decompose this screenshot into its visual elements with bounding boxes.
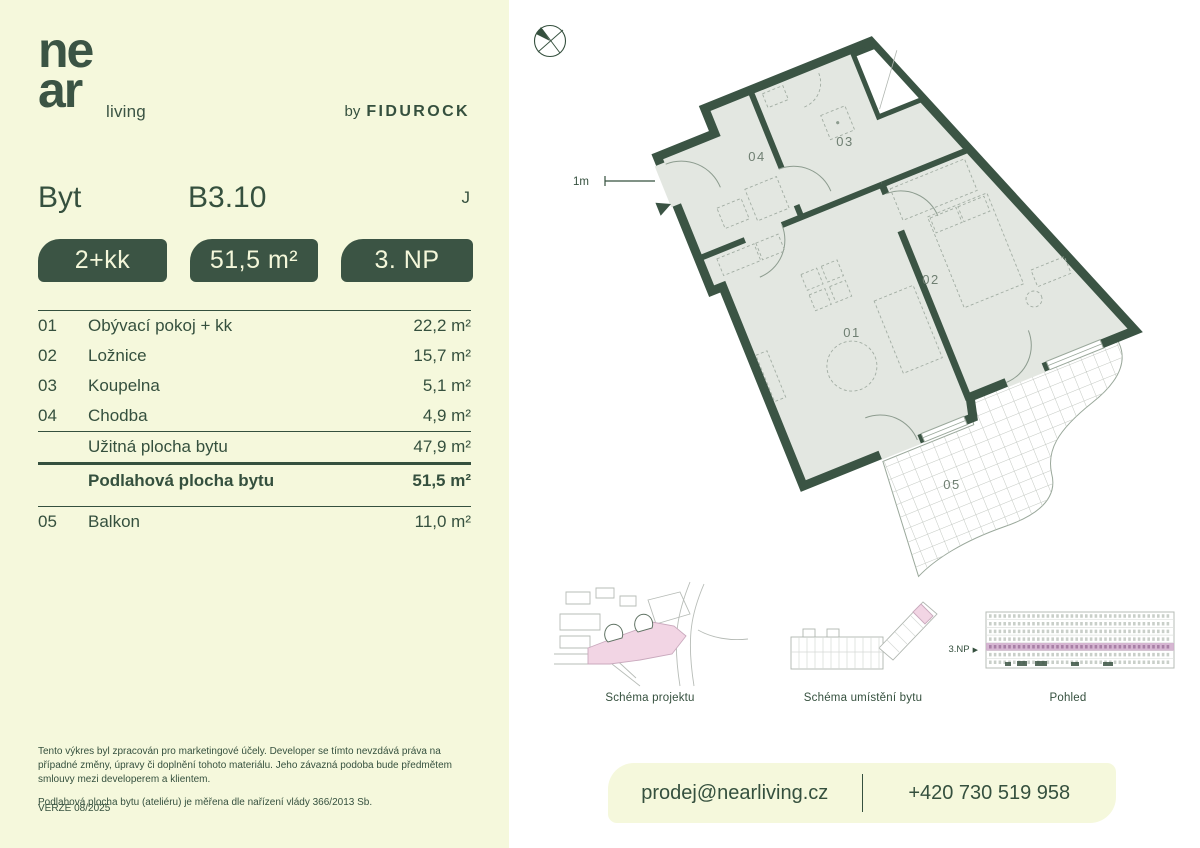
usable-area-label: Užitná plocha bytu	[88, 437, 413, 457]
room-area: 22,2 m²	[413, 316, 471, 336]
room-label-bedroom: 02	[922, 272, 939, 287]
by-label: by	[345, 103, 361, 120]
developer-byline: byFIDUROCK	[0, 103, 470, 121]
badge-layout: 2+kk	[38, 239, 167, 282]
fidurock-wordmark: FIDUROCK	[366, 103, 470, 120]
legal-disclaimer: Tento výkres byl zpracován pro marketing…	[38, 745, 471, 810]
floor-plate-schematic	[783, 582, 943, 687]
room-label-living: 01	[843, 325, 860, 340]
table-row: 01 Obývací pokoj + kk 22,2 m²	[38, 311, 471, 341]
table-row: 03 Koupelna 5,1 m²	[38, 371, 471, 401]
floor-area-label: Podlahová plocha bytu	[88, 471, 412, 491]
info-panel: ne ar living byFIDUROCK Byt B3.10 J 2+kk…	[0, 0, 509, 848]
floor-marker-label: 3.NP	[948, 644, 969, 655]
room-name: Ložnice	[88, 346, 413, 366]
unit-header: Byt B3.10 J	[38, 181, 470, 215]
disclaimer-paragraph-1: Tento výkres byl zpracován pro marketing…	[38, 745, 471, 787]
scale-label: 1m	[573, 176, 589, 188]
balcony-row: 05 Balkon 11,0 m²	[38, 507, 471, 537]
room-label-bath: 03	[836, 134, 853, 149]
room-name: Balkon	[88, 512, 415, 532]
room-area: 15,7 m²	[413, 346, 471, 366]
caption-site-plan: Schéma projektu	[552, 692, 748, 704]
site-plan-schematic	[552, 578, 748, 690]
room-number: 01	[38, 316, 88, 336]
version-label: VERZE 08/2025	[38, 803, 110, 814]
badge-floor: 3. NP	[341, 239, 473, 282]
orientation-label: J	[462, 188, 471, 208]
scale-bar: 1m	[573, 176, 655, 188]
floor-marker-arrow-icon: ▶	[973, 647, 978, 654]
room-name: Chodba	[88, 406, 423, 426]
unit-type-label: Byt	[38, 181, 81, 215]
room-label-hall: 04	[748, 149, 765, 164]
contact-email-link[interactable]: prodej@nearliving.cz	[608, 782, 862, 805]
unit-code: B3.10	[188, 181, 266, 215]
room-number: 04	[38, 406, 88, 426]
room-name: Koupelna	[88, 376, 423, 396]
balcony-table: 05 Balkon 11,0 m²	[38, 506, 471, 537]
floor-area-row: Podlahová plocha bytu 51,5 m²	[38, 465, 471, 497]
logo-wordmark: ne ar	[38, 30, 238, 110]
floor-area-value: 51,5 m²	[412, 471, 471, 491]
room-name: Obývací pokoj + kk	[88, 316, 413, 336]
flat-datasheet-page: ne ar living byFIDUROCK Byt B3.10 J 2+kk…	[0, 0, 1200, 848]
table-row: 02 Ložnice 15,7 m²	[38, 341, 471, 371]
room-area: 5,1 m²	[423, 376, 471, 396]
contact-phone-link[interactable]: +420 730 519 958	[863, 782, 1117, 805]
floor-plan-drawing: 1m	[509, 0, 1200, 600]
room-number: 03	[38, 376, 88, 396]
elevation-schematic	[983, 606, 1178, 684]
caption-elevation: Pohled	[972, 692, 1164, 704]
table-row: 04 Chodba 4,9 m²	[38, 401, 471, 431]
room-table: 01 Obývací pokoj + kk 22,2 m² 02 Ložnice…	[38, 310, 471, 497]
caption-unit-location: Schéma umístění bytu	[767, 692, 959, 704]
apartment-plan	[630, 0, 1191, 600]
room-number: 05	[38, 512, 88, 532]
contact-bar: prodej@nearliving.cz +420 730 519 958	[608, 763, 1116, 823]
usable-area-row: Užitná plocha bytu 47,9 m²	[38, 432, 471, 462]
room-number: 02	[38, 346, 88, 366]
floor-marker: 3.NP▶	[926, 644, 978, 655]
usable-area-value: 47,9 m²	[413, 437, 471, 457]
room-area: 11,0 m²	[415, 512, 471, 532]
room-label-balcony: 05	[943, 477, 960, 492]
compass-icon	[535, 26, 566, 57]
badge-area: 51,5 m²	[190, 239, 318, 282]
room-area: 4,9 m²	[423, 406, 471, 426]
